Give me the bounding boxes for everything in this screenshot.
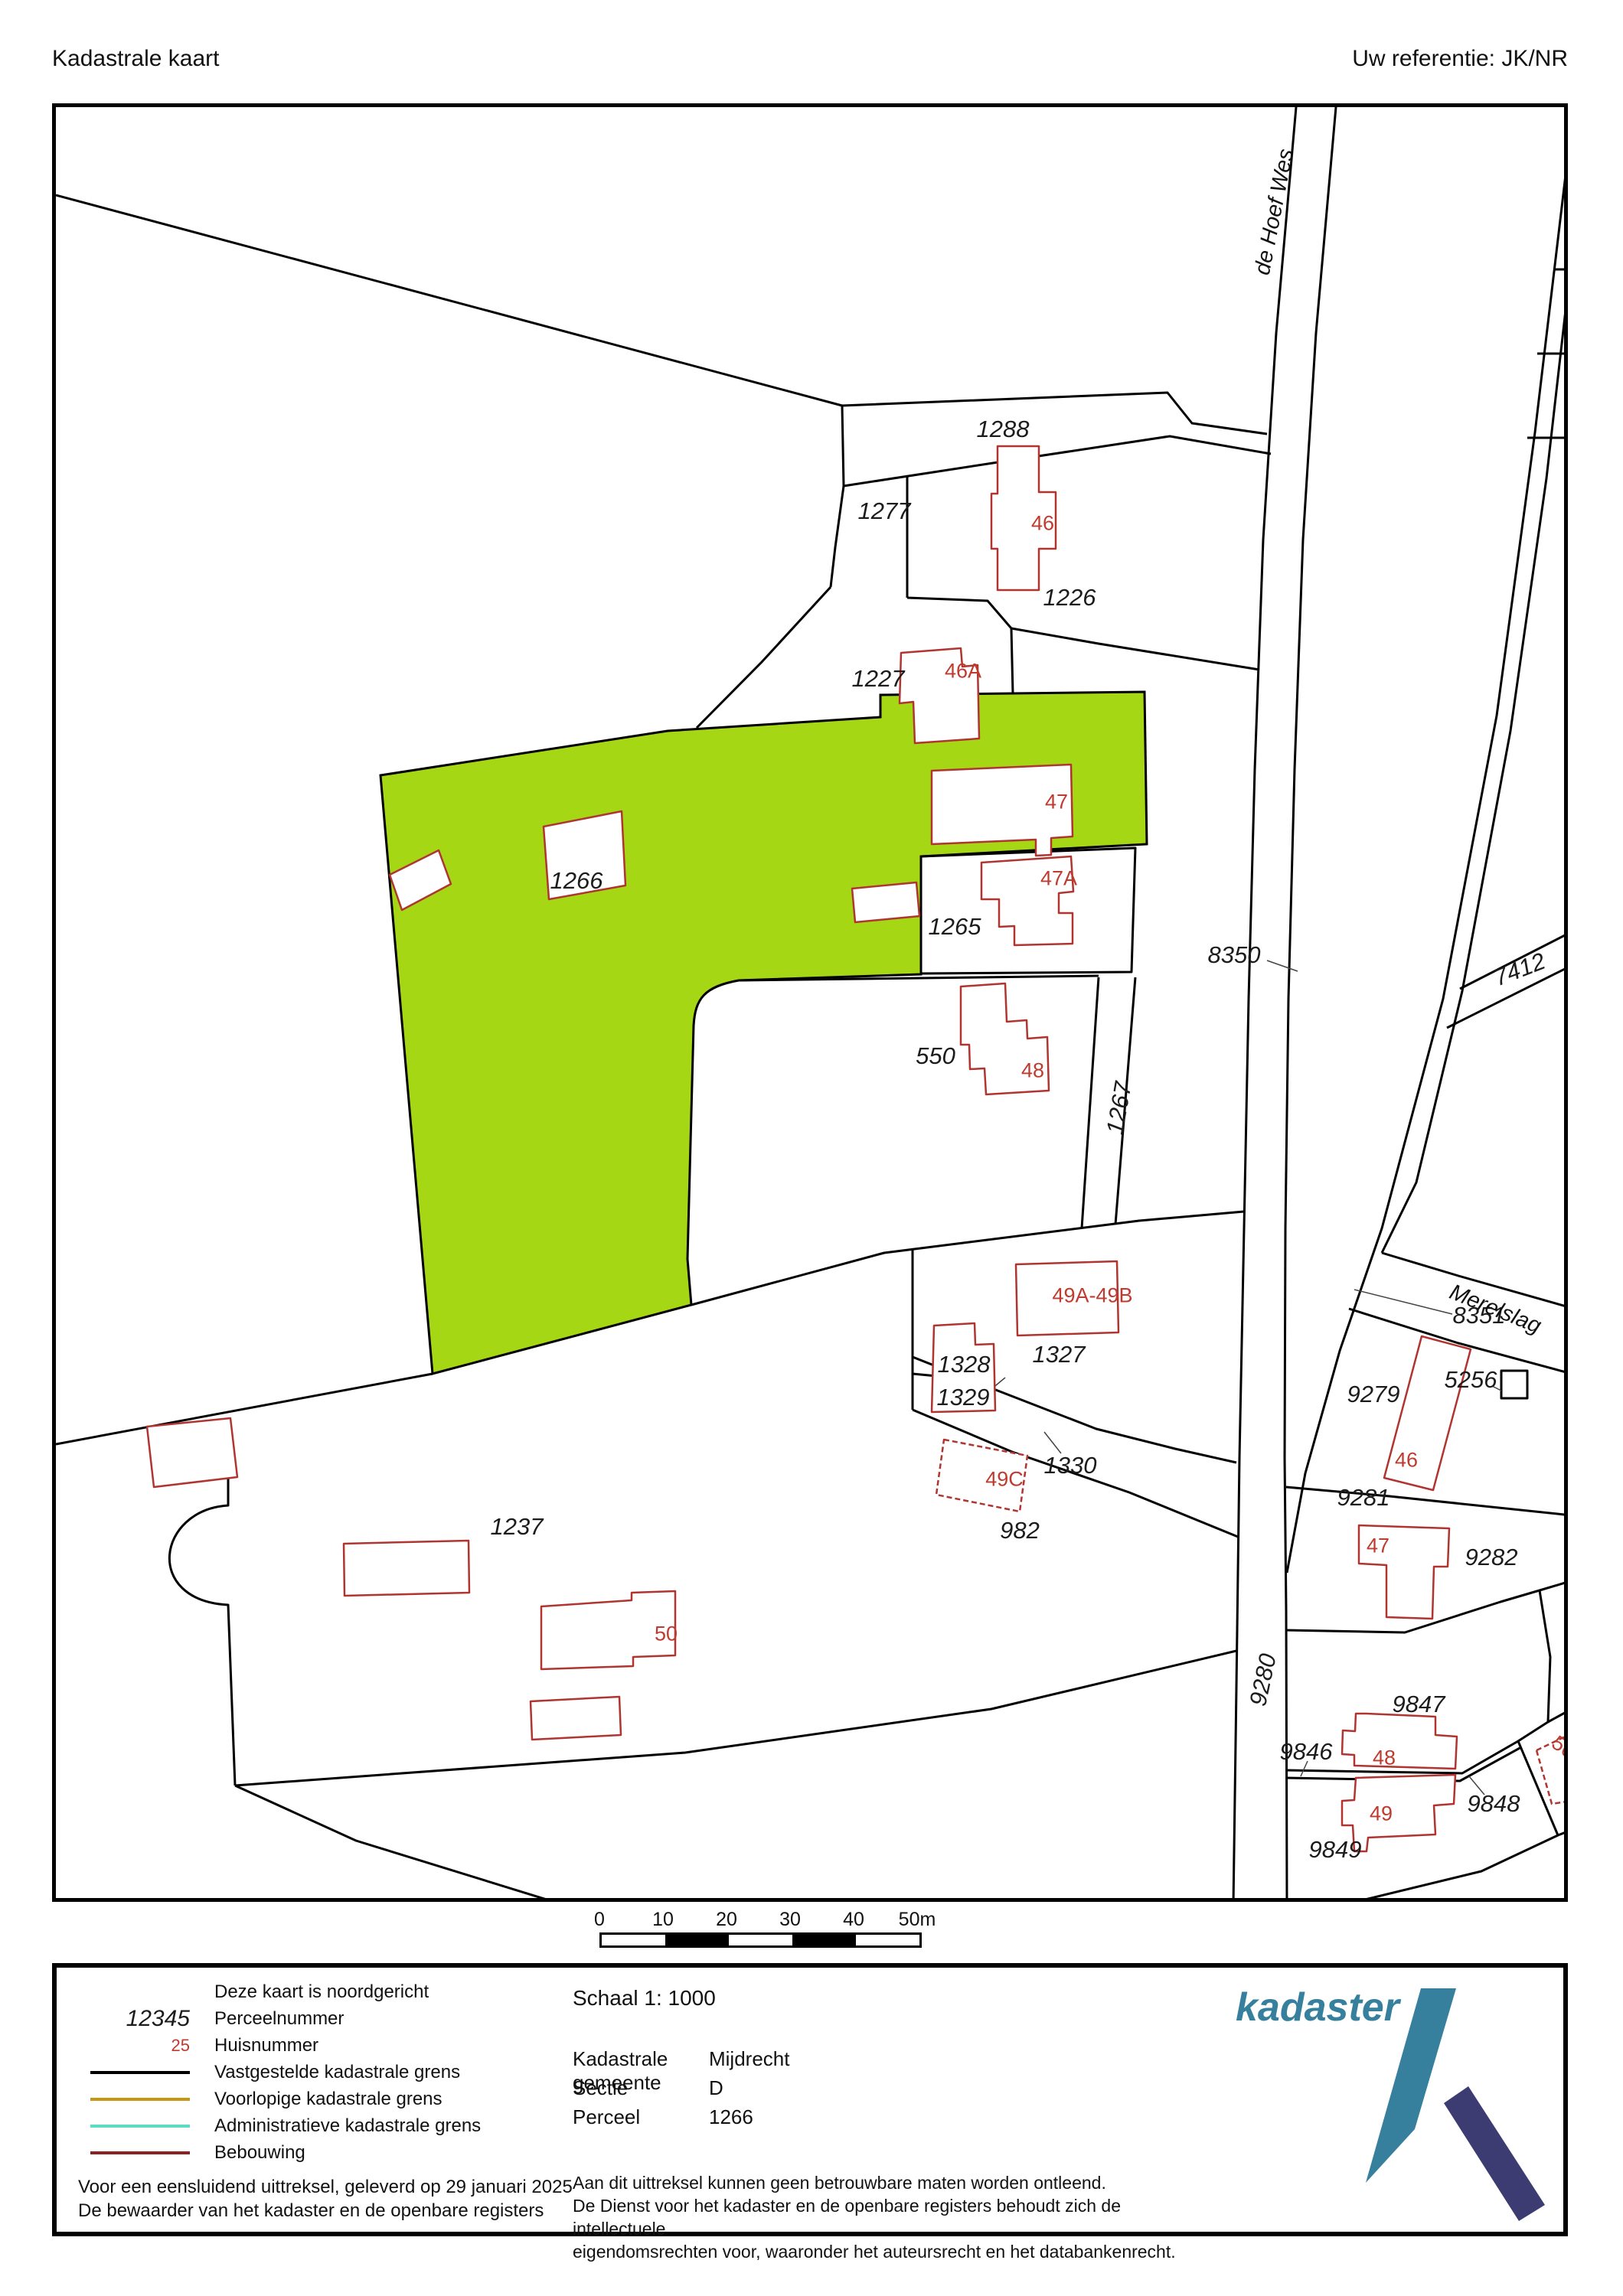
parcel-number-label: 1266: [550, 867, 603, 895]
map-canvas: 1288127712261227126612658350741255012671…: [52, 103, 1568, 1902]
info-value: Mijdrecht: [709, 2047, 789, 2076]
parcel-number-label: 1227: [852, 665, 905, 693]
info-row: Kadastrale gemeenteMijdrecht: [573, 2047, 789, 2076]
scale-tick-label: 40: [843, 1909, 864, 1931]
legend-line-sample: [90, 2125, 190, 2128]
legend-label: Voorlopige kadastrale grens: [190, 2089, 442, 2110]
legend-row: Bebouwing: [75, 2139, 481, 2166]
info-label: Perceel: [573, 2105, 709, 2135]
issued-statement: Voor een eensluidend uittreksel, gelever…: [78, 2175, 573, 2223]
disclaimer-line: De Dienst voor het kadaster en de openba…: [573, 2194, 1200, 2240]
legend: Deze kaart is noordgericht12345Perceelnu…: [75, 1978, 481, 2166]
house-number-sample: 25: [171, 2036, 190, 2056]
parcel-number-label: 1328: [938, 1351, 991, 1378]
disclaimer-line: Aan dit uittreksel kunnen geen betrouwba…: [573, 2171, 1200, 2194]
house-number-label: 49A-49B: [1052, 1284, 1132, 1308]
legend-line-sample: [90, 2151, 190, 2154]
parcel-number-label: 1226: [1043, 584, 1096, 612]
parcel-number-label: 1330: [1044, 1452, 1097, 1479]
parcel-number-label: 1237: [491, 1513, 544, 1541]
house-number-label: 47: [1367, 1534, 1390, 1558]
page-title: Kadastrale kaart: [52, 46, 219, 72]
legend-label: Perceelnummer: [190, 2008, 344, 2030]
house-number-label: 47: [1045, 791, 1068, 814]
legend-row: Deze kaart is noordgericht: [75, 1978, 481, 2005]
scale-bar-segment: [602, 1935, 665, 1945]
house-number-label: 48: [1373, 1746, 1396, 1770]
info-row: SectieD: [573, 2076, 789, 2105]
house-number-label: 50: [655, 1623, 678, 1646]
info-label: Sectie: [573, 2076, 709, 2105]
kadaster-logo: kadaster: [1228, 1968, 1568, 2232]
legend-sample: [75, 2151, 190, 2154]
house-number-label: 49: [1370, 1802, 1393, 1826]
scale-text: Schaal 1: 1000: [573, 1986, 716, 2011]
parcel-number-label: 550: [916, 1042, 955, 1070]
map-label-layer: 1288127712261227126612658350741255012671…: [56, 107, 1564, 1898]
scale-tick-label: 30: [779, 1909, 801, 1931]
kadaster-wordmark: kadaster: [1236, 1985, 1399, 2030]
legend-sample: [75, 2125, 190, 2128]
scale-bar-segment: [792, 1935, 856, 1945]
scale-bar-segment: [729, 1935, 792, 1945]
scale-tick-label: 20: [716, 1909, 737, 1931]
legend-sample: 25: [75, 2036, 190, 2056]
info-value: D: [709, 2076, 723, 2105]
house-number-label: 49C: [985, 1468, 1024, 1492]
parcel-number-label: 1329: [937, 1384, 990, 1411]
legend-line-sample: [90, 2071, 190, 2074]
reference-text: Uw referentie: JK/NR: [1352, 46, 1568, 72]
house-number-label: 50: [1547, 1731, 1568, 1764]
parcel-number-label: 1267: [1101, 1080, 1137, 1137]
legend-label: Administratieve kadastrale grens: [190, 2115, 481, 2137]
parcel-number-label: 9282: [1465, 1544, 1518, 1571]
parcel-number-label: 8350: [1208, 941, 1261, 969]
house-number-label: 46: [1395, 1449, 1418, 1473]
parcel-number-label: 9846: [1280, 1738, 1333, 1766]
legend-label: Deze kaart is noordgericht: [190, 1981, 429, 2003]
house-number-label: 47A: [1040, 867, 1077, 891]
legend-line-sample: [90, 2098, 190, 2101]
legend-label: Bebouwing: [190, 2142, 305, 2164]
legend-label: Huisnummer: [190, 2035, 318, 2056]
map-info-column: Schaal 1: 1000 Kadastrale gemeenteMijdre…: [573, 1968, 1200, 2232]
legend-sample: [75, 2071, 190, 2074]
parcel-number-label: 1265: [929, 913, 981, 941]
legend-label: Vastgestelde kadastrale grens: [190, 2062, 460, 2083]
legend-row: Administratieve kadastrale grens: [75, 2112, 481, 2139]
info-label: Kadastrale gemeente: [573, 2047, 709, 2076]
scale-bar-segment: [665, 1935, 729, 1945]
scale-tick-label: 10: [652, 1909, 674, 1931]
parcel-number-label: 1327: [1033, 1341, 1086, 1368]
parcel-number-label: 9847: [1393, 1691, 1445, 1718]
parcel-info-table: Kadastrale gemeenteMijdrechtSectieDPerce…: [573, 2047, 789, 2135]
legend-row: Voorlopige kadastrale grens: [75, 2086, 481, 2112]
parcel-number-sample: 12345: [126, 2006, 190, 2032]
scale-bar-segment: [856, 1935, 919, 1945]
issued-line: De bewaarder van het kadaster en de open…: [78, 2199, 573, 2223]
parcel-number-label: 9849: [1309, 1836, 1362, 1864]
scale-bar-strip: [599, 1932, 922, 1948]
disclaimer-text: Aan dit uittreksel kunnen geen betrouwba…: [573, 2171, 1200, 2263]
parcel-number-label: 7412: [1490, 947, 1549, 992]
legend-row: 25Huisnummer: [75, 2032, 481, 2059]
legend-row: Vastgestelde kadastrale grens: [75, 2059, 481, 2086]
info-value: 1266: [709, 2105, 753, 2135]
footer-panel: Deze kaart is noordgericht12345Perceelnu…: [52, 1963, 1568, 2236]
house-number-label: 46: [1031, 512, 1054, 536]
kadaster-map-extract-page: Kadastrale kaart Uw referentie: JK/NR: [0, 0, 1623, 2296]
disclaimer-line: eigendomsrechten voor, waaronder het aut…: [573, 2240, 1200, 2263]
issued-line: Voor een eensluidend uittreksel, gelever…: [78, 2175, 573, 2199]
street-name-label: de Hoef Wes: [1250, 147, 1299, 277]
legend-row: 12345Perceelnummer: [75, 2005, 481, 2032]
scale-tick-label: 0: [594, 1909, 605, 1931]
parcel-number-label: 5256: [1445, 1366, 1497, 1394]
info-row: Perceel1266: [573, 2105, 789, 2135]
parcel-number-label: 9280: [1244, 1652, 1282, 1709]
parcel-number-label: 9281: [1337, 1484, 1390, 1512]
house-number-label: 48: [1021, 1059, 1044, 1083]
parcel-number-label: 9279: [1347, 1381, 1400, 1408]
scale-bar: 01020304050m: [582, 1909, 942, 1949]
parcel-number-label: 982: [1000, 1517, 1040, 1544]
parcel-number-label: 9848: [1468, 1790, 1520, 1818]
parcel-number-label: 1288: [977, 416, 1030, 443]
house-number-label: 46A: [945, 660, 981, 683]
parcel-number-label: 1277: [858, 497, 911, 525]
legend-sample: 12345: [75, 2006, 190, 2032]
scale-tick-label: 50m: [899, 1909, 936, 1931]
legend-sample: [75, 2098, 190, 2101]
